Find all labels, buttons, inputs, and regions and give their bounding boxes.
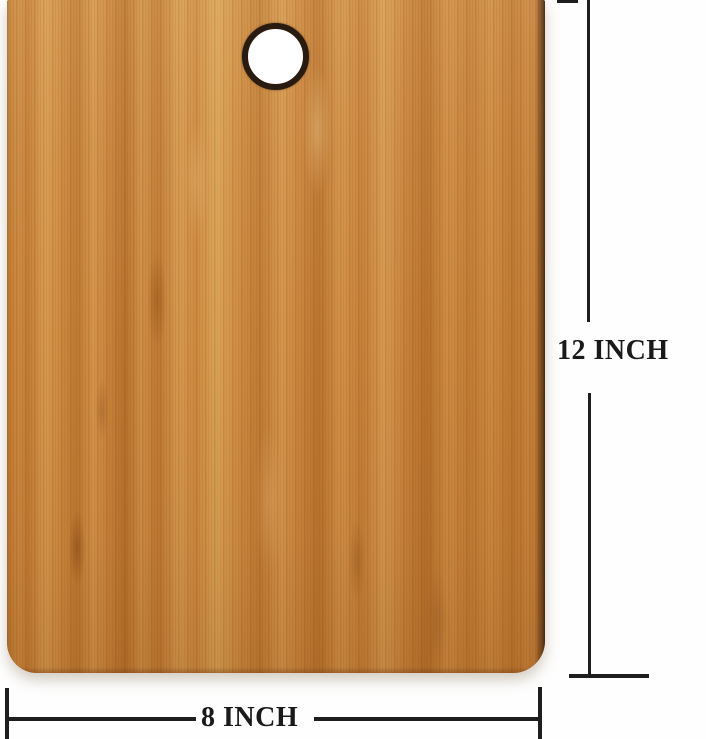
board-right-edge-shadow xyxy=(535,0,545,673)
hanging-hole xyxy=(242,23,309,90)
height-dimension-bottom-cap xyxy=(569,674,649,678)
board-bottom-edge-shadow xyxy=(7,667,545,673)
height-dimension-label: 12 INCH xyxy=(557,337,669,365)
wood-streaks-knots xyxy=(7,0,545,673)
cutting-board xyxy=(7,0,545,673)
width-dimension-line-right xyxy=(314,717,540,721)
width-dimension-right-tick xyxy=(538,687,542,739)
height-dimension-line-upper xyxy=(587,0,590,322)
width-dimension-line-left xyxy=(6,717,196,721)
height-dimension-top-cap xyxy=(557,0,578,3)
product-photo-scene: 12 INCH 8 INCH xyxy=(0,0,706,739)
width-dimension-label: 8 INCH xyxy=(201,704,298,732)
height-dimension-line-lower xyxy=(588,393,591,677)
width-dimension-left-tick xyxy=(5,688,9,739)
